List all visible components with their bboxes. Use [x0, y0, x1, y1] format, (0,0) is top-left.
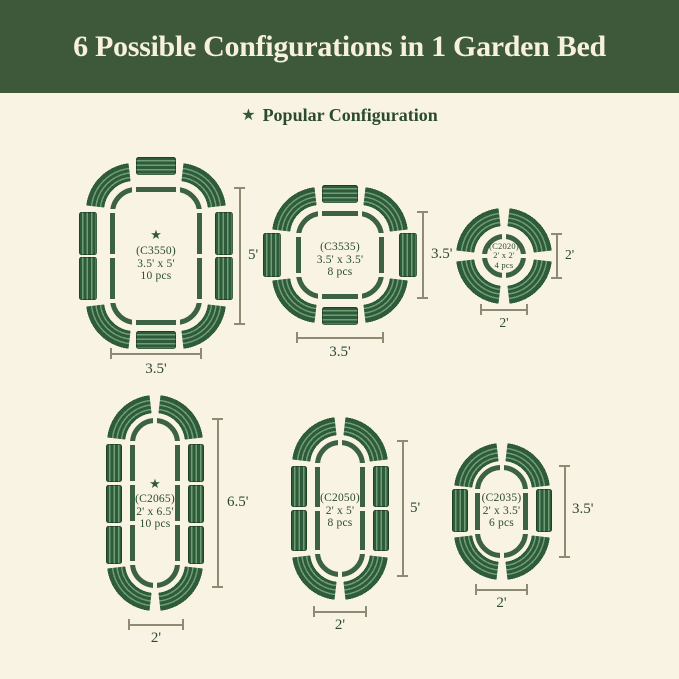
config-label: (C3535) 3.5' x 3.5' 8 pcs	[296, 241, 384, 279]
straight-panel	[136, 157, 176, 175]
height-dimension-label: 6.5'	[227, 494, 248, 511]
height-dimension-line	[551, 233, 562, 279]
config-code: (C3550)	[110, 245, 202, 258]
panel-joint-gap	[132, 317, 136, 329]
config-pieces: 10 pcs	[110, 270, 202, 283]
panel-joint-gap	[358, 291, 362, 303]
straight-panel	[399, 233, 417, 277]
straight-panel	[188, 526, 204, 564]
straight-panel	[106, 444, 122, 482]
width-dimension-line	[110, 348, 202, 359]
config-label: (C2065) 2' x 6.5' 10 pcs	[118, 493, 192, 531]
height-dimension-label: 2'	[565, 247, 574, 263]
config-code: (C2035)	[464, 492, 539, 505]
straight-panel	[215, 257, 233, 300]
width-dimension-label: 3.5'	[110, 361, 202, 378]
height-dimension-line	[559, 465, 570, 558]
popular-configuration-legend: ★ Popular Configuration	[0, 105, 679, 126]
panel-joint-gap	[500, 550, 504, 562]
popular-star-icon: ★	[110, 228, 202, 241]
config-size: 3.5' x 5'	[110, 258, 202, 271]
width-dimension-line	[480, 304, 528, 315]
height-dimension-label: 5'	[410, 500, 420, 517]
straight-panel	[188, 444, 204, 482]
config-code: (C2065)	[118, 493, 192, 506]
panel-joint-gap	[376, 233, 388, 237]
height-dimension-line	[234, 187, 245, 325]
config-size: 3.5' x 3.5'	[296, 254, 384, 267]
legend-label: Popular Configuration	[263, 105, 438, 126]
panel-joint-gap	[153, 580, 157, 592]
config-size: 2' x 3.5'	[464, 505, 539, 518]
width-dimension-label: 2'	[475, 595, 528, 612]
panel-joint-gap	[357, 463, 369, 467]
panel-joint-gap	[312, 550, 324, 554]
header-banner: 6 Possible Configurations in 1 Garden Be…	[0, 0, 679, 93]
panel-joint-gap	[176, 317, 180, 329]
config-label: (C2035) 2' x 3.5' 6 pcs	[464, 492, 539, 530]
panel-joint-gap	[472, 530, 484, 534]
panel-joint-gap	[107, 299, 119, 303]
straight-panel	[215, 212, 233, 255]
panel-joint-gap	[172, 441, 184, 445]
config-code: (C2050)	[303, 492, 377, 505]
config-pieces: 8 pcs	[296, 266, 384, 279]
panel-joint-gap	[357, 550, 369, 554]
width-dimension-line	[296, 332, 384, 343]
panel-joint-gap	[153, 415, 157, 427]
panel-joint-gap	[127, 561, 139, 565]
panel-joint-gap	[502, 270, 506, 282]
config-pieces: 8 pcs	[303, 517, 377, 530]
height-dimension-line	[397, 440, 408, 577]
straight-panel	[79, 257, 97, 300]
panel-joint-gap	[132, 184, 136, 196]
config-label: (C2020) 2' x 2' 4 pcs	[474, 242, 534, 270]
panel-joint-gap	[358, 208, 362, 220]
panel-joint-gap	[176, 184, 180, 196]
popular-star-icon: ★	[130, 477, 180, 490]
straight-panel	[136, 331, 176, 349]
width-dimension-line	[475, 584, 528, 595]
page-title: 6 Possible Configurations in 1 Garden Be…	[73, 30, 606, 64]
config-pieces: 6 pcs	[464, 517, 539, 530]
panel-joint-gap	[338, 569, 342, 581]
config-label: (C2050) 2' x 5' 8 pcs	[303, 492, 377, 530]
panel-joint-gap	[312, 463, 324, 467]
config-label: (C3550) 3.5' x 5' 10 pcs	[110, 245, 202, 283]
width-dimension-line	[313, 606, 367, 617]
panel-joint-gap	[338, 437, 342, 449]
panel-joint-gap	[127, 441, 139, 445]
width-dimension-label: 3.5'	[296, 344, 384, 361]
panel-joint-gap	[194, 209, 206, 213]
straight-panel	[322, 307, 358, 325]
straight-panel	[322, 185, 358, 203]
panel-joint-gap	[318, 291, 322, 303]
height-dimension-line	[212, 418, 223, 588]
width-dimension-line	[128, 619, 184, 630]
panel-joint-gap	[107, 209, 119, 213]
width-dimension-label: 2'	[313, 617, 367, 634]
straight-panel	[106, 526, 122, 564]
straight-panel	[263, 233, 281, 277]
star-icon: ★	[241, 108, 255, 124]
config-size: 2' x 6.5'	[118, 506, 192, 519]
width-dimension-label: 2'	[480, 315, 528, 331]
straight-panel	[79, 212, 97, 255]
config-code: (C3535)	[296, 241, 384, 254]
panel-joint-gap	[520, 530, 532, 534]
height-dimension-line	[417, 211, 428, 299]
height-dimension-label: 3.5'	[572, 501, 593, 518]
config-pieces: 4 pcs	[474, 261, 534, 270]
panel-joint-gap	[194, 299, 206, 303]
config-pieces: 10 pcs	[118, 518, 192, 531]
panel-joint-gap	[293, 233, 305, 237]
height-dimension-label: 5'	[248, 247, 258, 264]
panel-joint-gap	[172, 561, 184, 565]
infographic-canvas: 6 Possible Configurations in 1 Garden Be…	[0, 0, 679, 679]
panel-joint-gap	[500, 462, 504, 474]
config-size: 2' x 5'	[303, 505, 377, 518]
panel-joint-gap	[318, 208, 322, 220]
width-dimension-label: 2'	[128, 630, 184, 647]
